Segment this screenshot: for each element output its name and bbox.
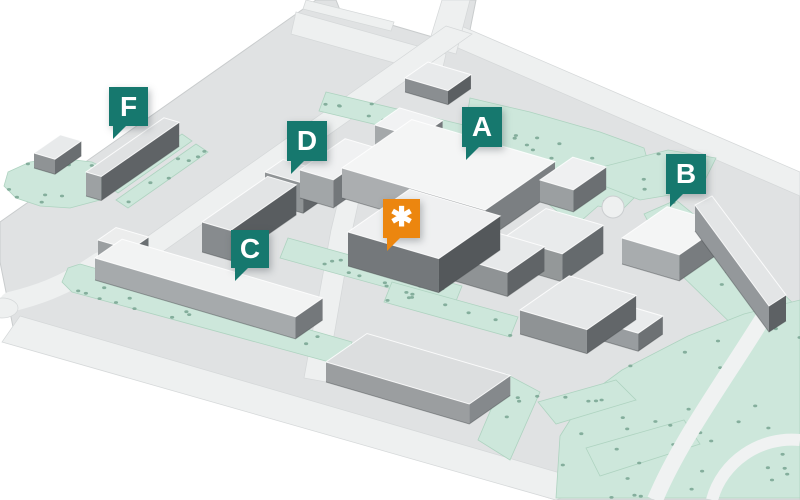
marker-label: ✱ — [390, 202, 413, 233]
marker-label: B — [676, 158, 696, 190]
cul-de-sac — [602, 196, 624, 218]
map-render — [0, 0, 800, 500]
marker-d[interactable]: D — [287, 121, 327, 161]
marker-f[interactable]: F — [109, 87, 148, 126]
marker-label: A — [472, 111, 492, 143]
marker-c[interactable]: C — [231, 230, 269, 268]
marker-label: D — [297, 125, 317, 157]
marker-asterisk[interactable]: ✱ — [383, 199, 420, 238]
marker-a[interactable]: A — [462, 107, 502, 147]
marker-label: C — [240, 233, 260, 265]
marker-label: F — [120, 91, 137, 123]
marker-b[interactable]: B — [666, 154, 706, 194]
campus-map: FDA✱CB — [0, 0, 800, 500]
